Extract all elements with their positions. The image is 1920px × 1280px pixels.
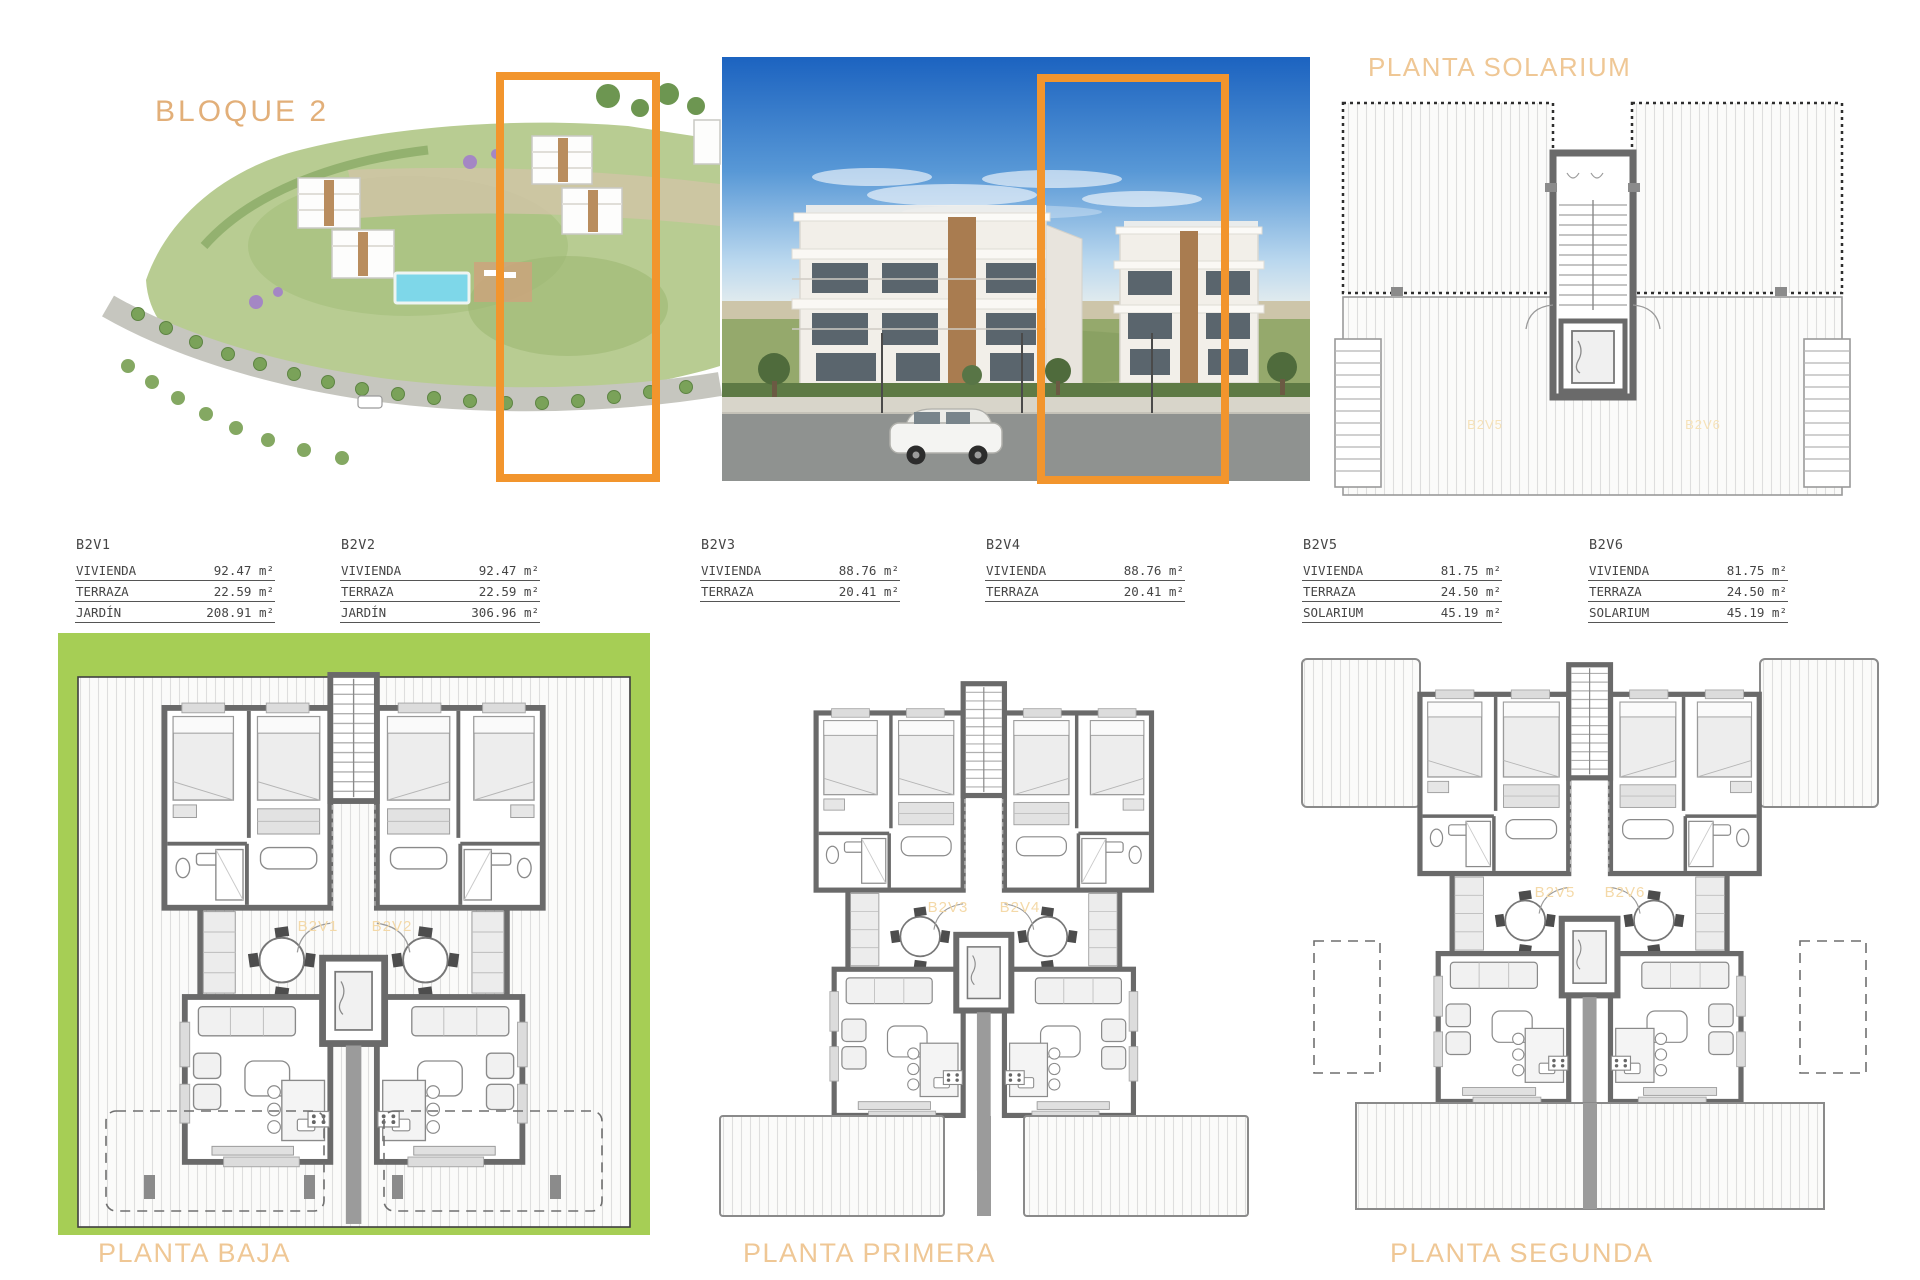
upper-terrace-right [1760, 659, 1878, 807]
floor-plan-segunda: B2V5 B2V6 [1300, 645, 1880, 1220]
unit-label: B2V4 [1000, 899, 1041, 916]
area-row: VIVIENDA88.76 m² [985, 560, 1185, 581]
area-row: TERRAZA22.59 m² [340, 581, 540, 602]
unit-label: B2V1 [298, 918, 339, 935]
unit-label: B2V5 [1535, 884, 1576, 901]
unit-id: B2V4 [986, 537, 1185, 553]
unit-label: B2V3 [928, 899, 969, 916]
open-zone-left [1314, 941, 1380, 1073]
solarium-plan-title: PLANTA SOLARIUM [1368, 52, 1631, 83]
unit-table-b2v6: B2V6 VIVIENDA81.75 m² TERRAZA24.50 m² SO… [1588, 537, 1788, 623]
area-row: JARDÍN208.91 m² [75, 602, 275, 623]
pool [395, 273, 469, 303]
unit-label: B2V6 [1685, 417, 1721, 432]
side-stair-right [1804, 339, 1850, 487]
unit-label: B2V2 [372, 918, 413, 935]
unit-id: B2V3 [701, 537, 900, 553]
walkway [1583, 1103, 1597, 1209]
area-row: VIVIENDA92.47 m² [75, 560, 275, 581]
unit-table-b2v3: B2V3 VIVIENDA88.76 m² TERRAZA20.41 m² [700, 537, 900, 602]
area-row: VIVIENDA88.76 m² [700, 560, 900, 581]
plan-title-segunda: PLANTA SEGUNDA [1390, 1238, 1654, 1269]
aerial-site-render [108, 66, 720, 480]
side-stair-left [1335, 339, 1381, 487]
area-row: TERRAZA22.59 m² [75, 581, 275, 602]
area-row: VIVIENDA81.75 m² [1302, 560, 1502, 581]
solarium-plan: B2V5 B2V6 [1335, 95, 1850, 507]
solarium-deck-left [1343, 103, 1553, 293]
area-row: SOLARIUM45.19 m² [1302, 602, 1502, 623]
unit-id: B2V2 [341, 537, 540, 553]
area-row: TERRAZA20.41 m² [700, 581, 900, 602]
plan-sheet: BLOQUE 2 [0, 0, 1920, 1280]
terrace-right [1024, 1116, 1248, 1216]
unit-table-b2v5: B2V5 VIVIENDA81.75 m² TERRAZA24.50 m² SO… [1302, 537, 1502, 623]
open-zone-right [1800, 941, 1866, 1073]
unit-label: B2V6 [1605, 884, 1646, 901]
unit-id: B2V5 [1303, 537, 1502, 553]
plan-title-baja: PLANTA BAJA [98, 1238, 291, 1269]
walkway [977, 1116, 991, 1216]
unit-table-b2v2: B2V2 VIVIENDA92.47 m² TERRAZA22.59 m² JA… [340, 537, 540, 623]
top-trees [596, 83, 705, 117]
area-row: TERRAZA24.50 m² [1302, 581, 1502, 602]
building-partial-right [694, 120, 720, 164]
unit-table-b2v4: B2V4 VIVIENDA88.76 m² TERRAZA20.41 m² [985, 537, 1185, 602]
unit-label: B2V5 [1467, 417, 1503, 432]
area-row: TERRAZA20.41 m² [985, 581, 1185, 602]
unit-table-b2v1: B2V1 VIVIENDA92.47 m² TERRAZA22.59 m² JA… [75, 537, 275, 623]
area-row: SOLARIUM45.19 m² [1588, 602, 1788, 623]
floor-plan-primera: B2V3 B2V4 [710, 682, 1258, 1222]
stair-core [1553, 153, 1633, 397]
white-car [358, 396, 382, 408]
street-render [722, 57, 1310, 481]
upper-terrace-left [1302, 659, 1420, 807]
area-row: JARDÍN306.96 m² [340, 602, 540, 623]
floor-plan-baja: B2V1 B2V2 [58, 633, 650, 1235]
terrace-left [720, 1116, 944, 1216]
area-row: VIVIENDA92.47 m² [340, 560, 540, 581]
building-right [1114, 221, 1264, 383]
solarium-deck-right [1632, 103, 1842, 293]
unit-id: B2V1 [76, 537, 275, 553]
area-row: VIVIENDA81.75 m² [1588, 560, 1788, 581]
plan-title-primera: PLANTA PRIMERA [743, 1238, 996, 1269]
area-row: TERRAZA24.50 m² [1588, 581, 1788, 602]
unit-id: B2V6 [1589, 537, 1788, 553]
